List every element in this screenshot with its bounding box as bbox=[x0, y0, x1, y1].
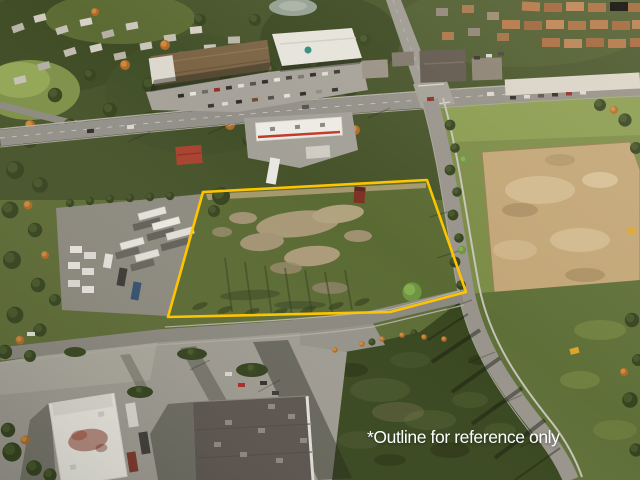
annotation-text: *Outline for reference only bbox=[367, 427, 560, 448]
aerial-photo: *Outline for reference only bbox=[0, 0, 640, 480]
aerial-photo-canvas bbox=[0, 0, 640, 480]
light-grade bbox=[0, 0, 640, 480]
